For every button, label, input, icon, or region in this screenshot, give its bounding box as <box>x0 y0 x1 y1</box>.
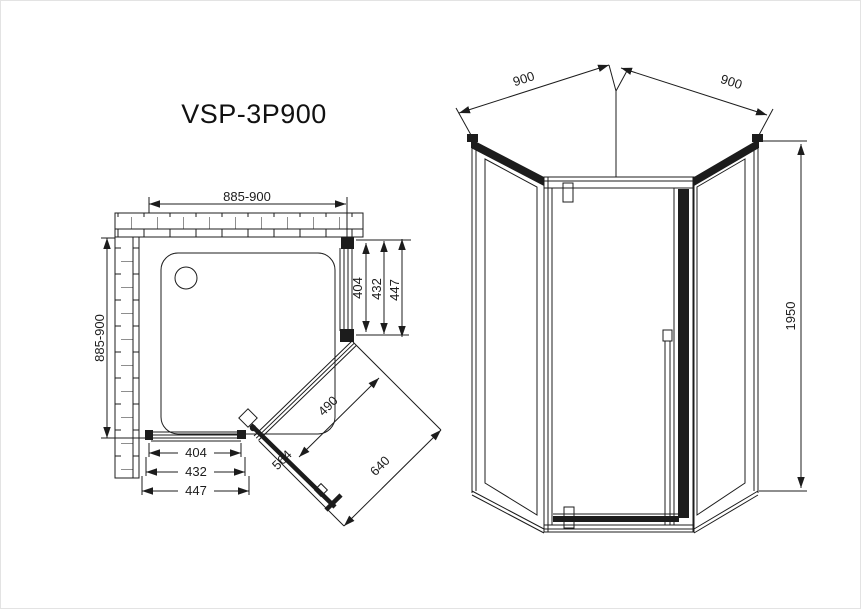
dim-right-3: 447 <box>387 279 402 301</box>
dim-height-1950: 1950 <box>759 141 807 491</box>
dim-bottom-3: 447 <box>185 483 207 498</box>
dim-door-panel: 564 <box>269 447 295 473</box>
door-closed-outline <box>254 341 356 440</box>
drain-circle <box>175 267 197 289</box>
technical-drawing: 885-900 885-900 404 432 447 404 <box>1 1 861 609</box>
wall-left <box>115 237 139 478</box>
wall-top <box>115 213 363 237</box>
dim-height-label: 1950 <box>783 302 798 331</box>
fixed-panel-bottom <box>145 430 246 441</box>
door-hinge-top <box>563 183 573 202</box>
dim-diag-opening: 640 <box>367 453 393 479</box>
dim-front-right-label: 900 <box>719 71 744 92</box>
hinge-corner-connector <box>237 430 246 439</box>
dim-front-left-900: 900 <box>456 65 609 135</box>
corner-connector-top <box>341 237 354 249</box>
dim-front-left-label: 900 <box>511 68 536 89</box>
front-face <box>544 177 694 532</box>
front-view: 900 900 1950 <box>456 65 807 533</box>
corner-cap-left <box>467 134 478 142</box>
shower-tray <box>161 253 335 434</box>
drawing-sheet: 885-900 885-900 404 432 447 404 <box>0 0 861 609</box>
door-handle-front <box>663 330 672 525</box>
side-panel-right <box>694 134 763 533</box>
dim-right-1: 404 <box>350 277 365 299</box>
glass-right <box>697 159 745 515</box>
plan-view: 885-900 885-900 404 432 447 404 <box>92 99 441 526</box>
top-rail-left <box>471 139 544 186</box>
dims-right-side: 404 432 447 <box>350 239 411 337</box>
corner-connector-mid <box>340 329 354 342</box>
dim-bottom-2: 432 <box>185 464 207 479</box>
dim-right-2: 432 <box>369 278 384 300</box>
dim-top-width-label: 885-900 <box>223 189 271 204</box>
side-panel-left <box>467 134 544 533</box>
door-pivot <box>250 425 256 431</box>
dims-bottom-side: 404 432 447 <box>142 443 249 498</box>
glass-left <box>485 159 537 515</box>
door-hinge-block <box>239 409 257 427</box>
dim-left-depth-label: 885-900 <box>92 314 107 362</box>
dim-bottom-1: 404 <box>185 445 207 460</box>
model-title: VSP-3P900 <box>181 99 327 129</box>
door-side-post <box>678 189 689 518</box>
dim-door-glass: 490 <box>315 393 341 419</box>
dim-front-right-900: 900 <box>621 68 773 135</box>
bottom-rail <box>553 516 679 522</box>
dim-centre-vee <box>609 65 628 177</box>
top-rail-right <box>694 139 759 186</box>
